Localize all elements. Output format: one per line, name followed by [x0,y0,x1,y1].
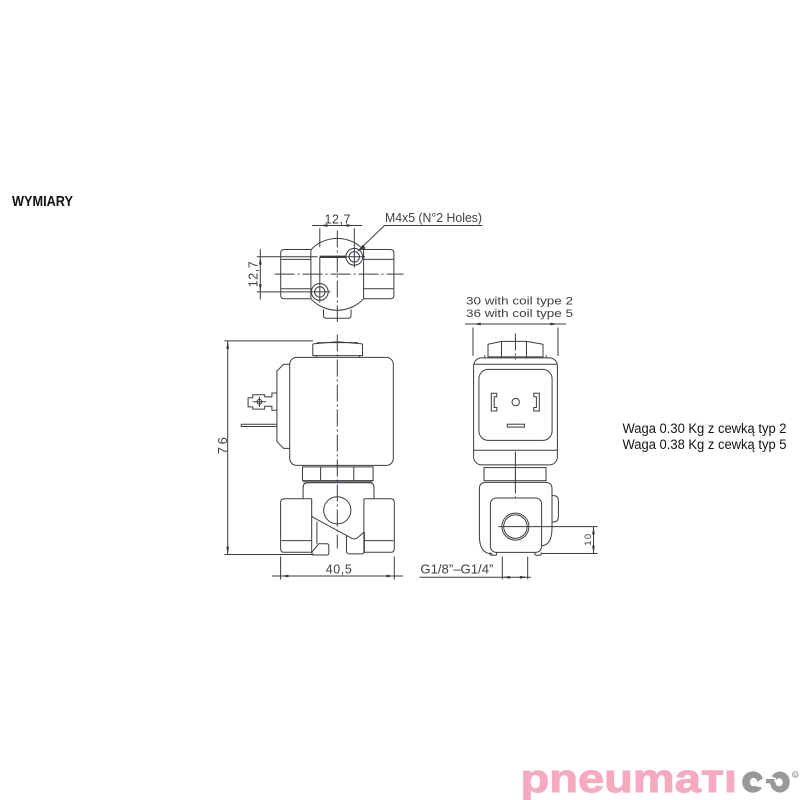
svg-text:40,5: 40,5 [326,563,352,577]
svg-text:36 with coil type 5: 36 with coil type 5 [466,308,573,320]
svg-text:pneumaтı: pneumaтı [521,757,738,800]
svg-text:12,7: 12,7 [325,213,351,227]
svg-text:12,7: 12,7 [246,261,260,287]
svg-text:30 with coil type 2: 30 with coil type 2 [466,296,573,308]
svg-text:G1/8”–G1/4”: G1/8”–G1/4” [420,562,493,576]
svg-text:10: 10 [583,534,594,546]
svg-text:Waga 0.38 Kg z cewką typ 5: Waga 0.38 Kg z cewką typ 5 [623,437,787,452]
svg-text:M4x5 (N°2 Holes): M4x5 (N°2 Holes) [385,211,482,225]
svg-text:WYMIARY: WYMIARY [12,193,73,210]
svg-text:Waga 0.30 Kg z cewką typ 2: Waga 0.30 Kg z cewką typ 2 [623,421,787,436]
